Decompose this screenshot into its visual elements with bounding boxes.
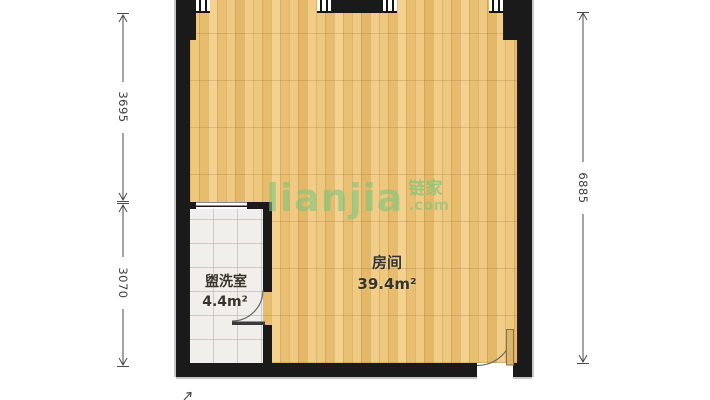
main-room-name: 房间 — [372, 252, 402, 273]
main-room-area: 39.4m² — [357, 275, 416, 293]
wall-right — [517, 0, 532, 377]
washroom-window-icon — [196, 202, 247, 209]
pier-top-right — [503, 0, 517, 40]
washroom-right-wall-upper — [263, 202, 272, 292]
wall-bottom-right-of-door — [513, 363, 532, 377]
window-icon — [317, 0, 331, 13]
washroom-area: 4.4m² — [202, 294, 248, 310]
washroom-right-wall-lower — [263, 325, 272, 363]
wall-top-middle — [331, 0, 383, 13]
window-icon — [383, 0, 397, 13]
dimension-label-right: 6885 — [575, 169, 591, 206]
cutoff-dimension-arrow — [184, 393, 191, 400]
wall-bottom — [176, 363, 477, 377]
washroom-name: 盥洗室 — [205, 271, 247, 291]
wall-left — [176, 0, 190, 377]
window-icon — [196, 0, 210, 13]
dimension-label-left-lower: 3070 — [115, 264, 131, 301]
dimension-label-left-upper: 3695 — [115, 88, 131, 125]
floor-plan-canvas: 房间 39.4m² 盥洗室 4.4m² 3695 3070 6885 lianj… — [0, 0, 710, 400]
window-icon — [489, 0, 503, 13]
